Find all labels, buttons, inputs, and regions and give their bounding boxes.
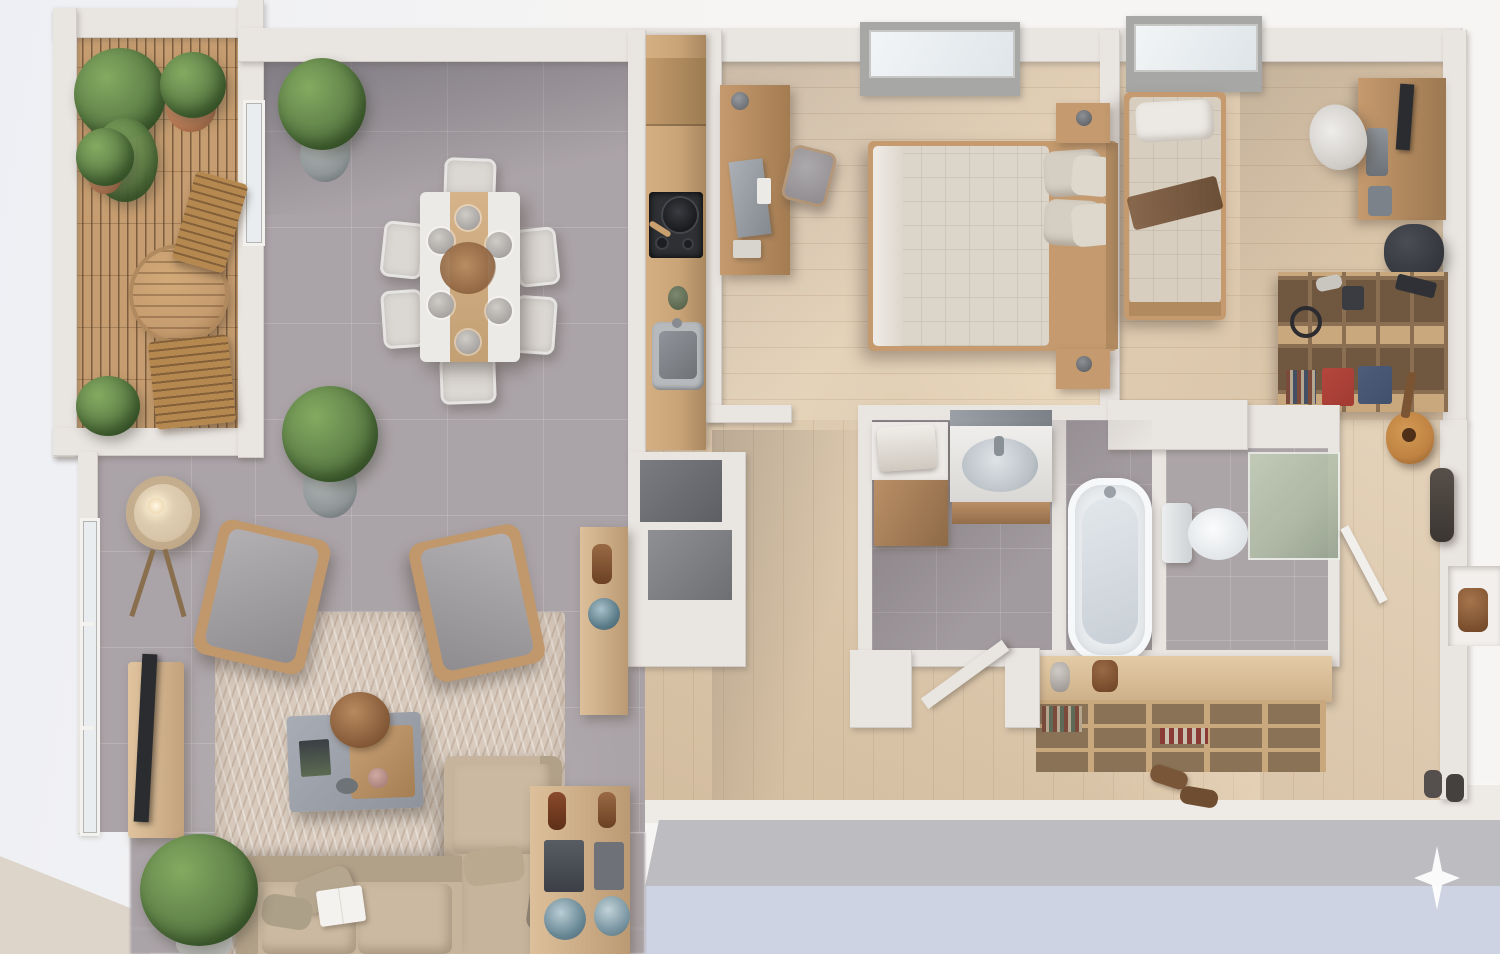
- utensil-crock: [668, 286, 688, 310]
- master-window-glass: [869, 30, 1015, 78]
- figurine: [592, 544, 612, 584]
- shower-glass: [1248, 452, 1340, 560]
- towel-cabinet: [874, 480, 948, 546]
- headphones-icon: [1290, 306, 1322, 338]
- decor-bowl: [336, 778, 358, 794]
- book-stack: [544, 840, 584, 892]
- bed-end-bench: [1129, 302, 1221, 316]
- potted-plant: [160, 52, 226, 118]
- wc-top-wall: [1108, 400, 1248, 450]
- window-mullion: [80, 622, 94, 626]
- sink-faucet: [994, 436, 1004, 456]
- desk-tray: [1368, 186, 1392, 216]
- sofa-seat-cushion: [358, 884, 452, 954]
- bedroom2-window-glass: [1134, 24, 1258, 72]
- stored-bags: [1458, 588, 1488, 632]
- top-wall: [238, 28, 1462, 62]
- folding-chair-lower: [148, 334, 237, 430]
- place-setting: [486, 298, 512, 324]
- sink-basin: [659, 331, 697, 379]
- nightstand-lamp: [1076, 110, 1092, 126]
- nightstand-lamp: [1076, 356, 1092, 372]
- keyboard: [1366, 128, 1388, 176]
- figurine: [548, 792, 566, 830]
- floor-lamp-shade: [126, 476, 200, 550]
- closet-compartment: [648, 530, 732, 600]
- potted-plant: [278, 58, 366, 150]
- toilet-bowl: [1188, 508, 1248, 560]
- master-bottom-wall: [706, 405, 792, 423]
- lower-unit-gray-band: [645, 820, 1500, 887]
- coat-rack: [1430, 468, 1454, 542]
- throw-pillow: [462, 844, 526, 887]
- sheet-fold: [873, 146, 903, 346]
- decor-sculpture: [1092, 660, 1118, 692]
- sink-faucet: [672, 318, 682, 328]
- decor-sphere: [368, 768, 388, 788]
- centerpiece-twigs: [440, 242, 496, 294]
- pillow: [1135, 99, 1215, 143]
- living-window-strip: [80, 518, 100, 836]
- book-row: [1042, 706, 1082, 732]
- tub-faucet: [1104, 486, 1116, 498]
- book: [733, 240, 761, 258]
- open-book: [316, 885, 367, 927]
- potted-plant: [282, 386, 378, 482]
- shelf-top-box: [1342, 286, 1364, 310]
- potted-plant: [76, 376, 140, 436]
- frying-pan: [663, 198, 697, 232]
- floorplan-render: [0, 0, 1500, 954]
- guitar-soundhole: [1402, 428, 1416, 442]
- potted-plant: [76, 128, 134, 186]
- figurine: [598, 792, 616, 828]
- balcony-door-glass: [243, 100, 265, 246]
- notepad: [757, 178, 771, 204]
- book-stack: [299, 739, 331, 777]
- window-mullion: [80, 726, 94, 730]
- globe-decor: [594, 896, 630, 936]
- exterior-corner: [0, 818, 150, 954]
- sideboard-top: [1028, 656, 1332, 702]
- kitchen-left-wall: [628, 30, 646, 458]
- entry-wall-stub: [1005, 648, 1040, 728]
- towel-stack: [877, 424, 938, 472]
- closet-compartment: [640, 460, 722, 522]
- blue-bin: [1358, 366, 1392, 404]
- balcony-wall-top: [53, 8, 245, 38]
- place-setting: [456, 206, 480, 230]
- shoes-pair: [1424, 770, 1442, 798]
- desk-lamp: [731, 92, 749, 110]
- headboard: [1106, 143, 1118, 349]
- place-setting: [456, 330, 480, 354]
- vanity-mirror: [950, 410, 1052, 426]
- balcony-wall-left: [53, 8, 77, 458]
- red-bin: [1322, 368, 1354, 406]
- vanity-drawer: [952, 502, 1050, 524]
- book-row: [1286, 370, 1316, 404]
- table-plant: [330, 692, 390, 748]
- lower-unit-blue-band: [645, 886, 1500, 954]
- globe-decor: [588, 598, 620, 630]
- entry-wall-stub: [850, 650, 912, 728]
- burner: [655, 236, 669, 250]
- decor-vase: [1050, 662, 1070, 692]
- book-row: [1160, 728, 1208, 744]
- kitchen-tall-cabinet: [646, 58, 706, 126]
- bathtub-basin: [1082, 498, 1138, 644]
- shoes-pair: [1446, 774, 1464, 802]
- dining-chair: [513, 226, 561, 288]
- globe-decor: [544, 898, 586, 940]
- dining-chair: [439, 355, 497, 405]
- burner: [682, 238, 694, 250]
- place-setting: [428, 292, 454, 318]
- potted-plant: [140, 834, 258, 946]
- decor-box: [594, 842, 624, 890]
- lamp-bulb-glow: [148, 498, 164, 514]
